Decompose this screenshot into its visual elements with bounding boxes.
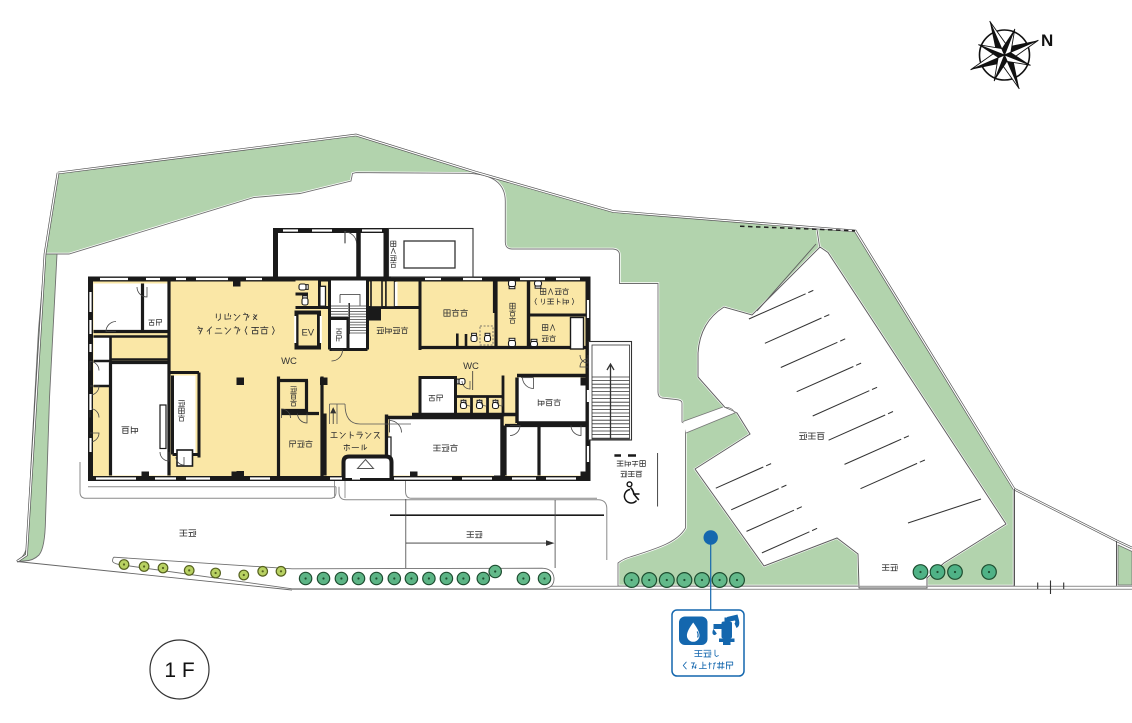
svg-text:WC: WC	[463, 361, 479, 372]
svg-text:EV: EV	[301, 328, 314, 339]
svg-text:WC: WC	[281, 356, 297, 367]
svg-text:N: N	[1041, 31, 1053, 50]
svg-text:1 F: 1 F	[164, 659, 194, 682]
